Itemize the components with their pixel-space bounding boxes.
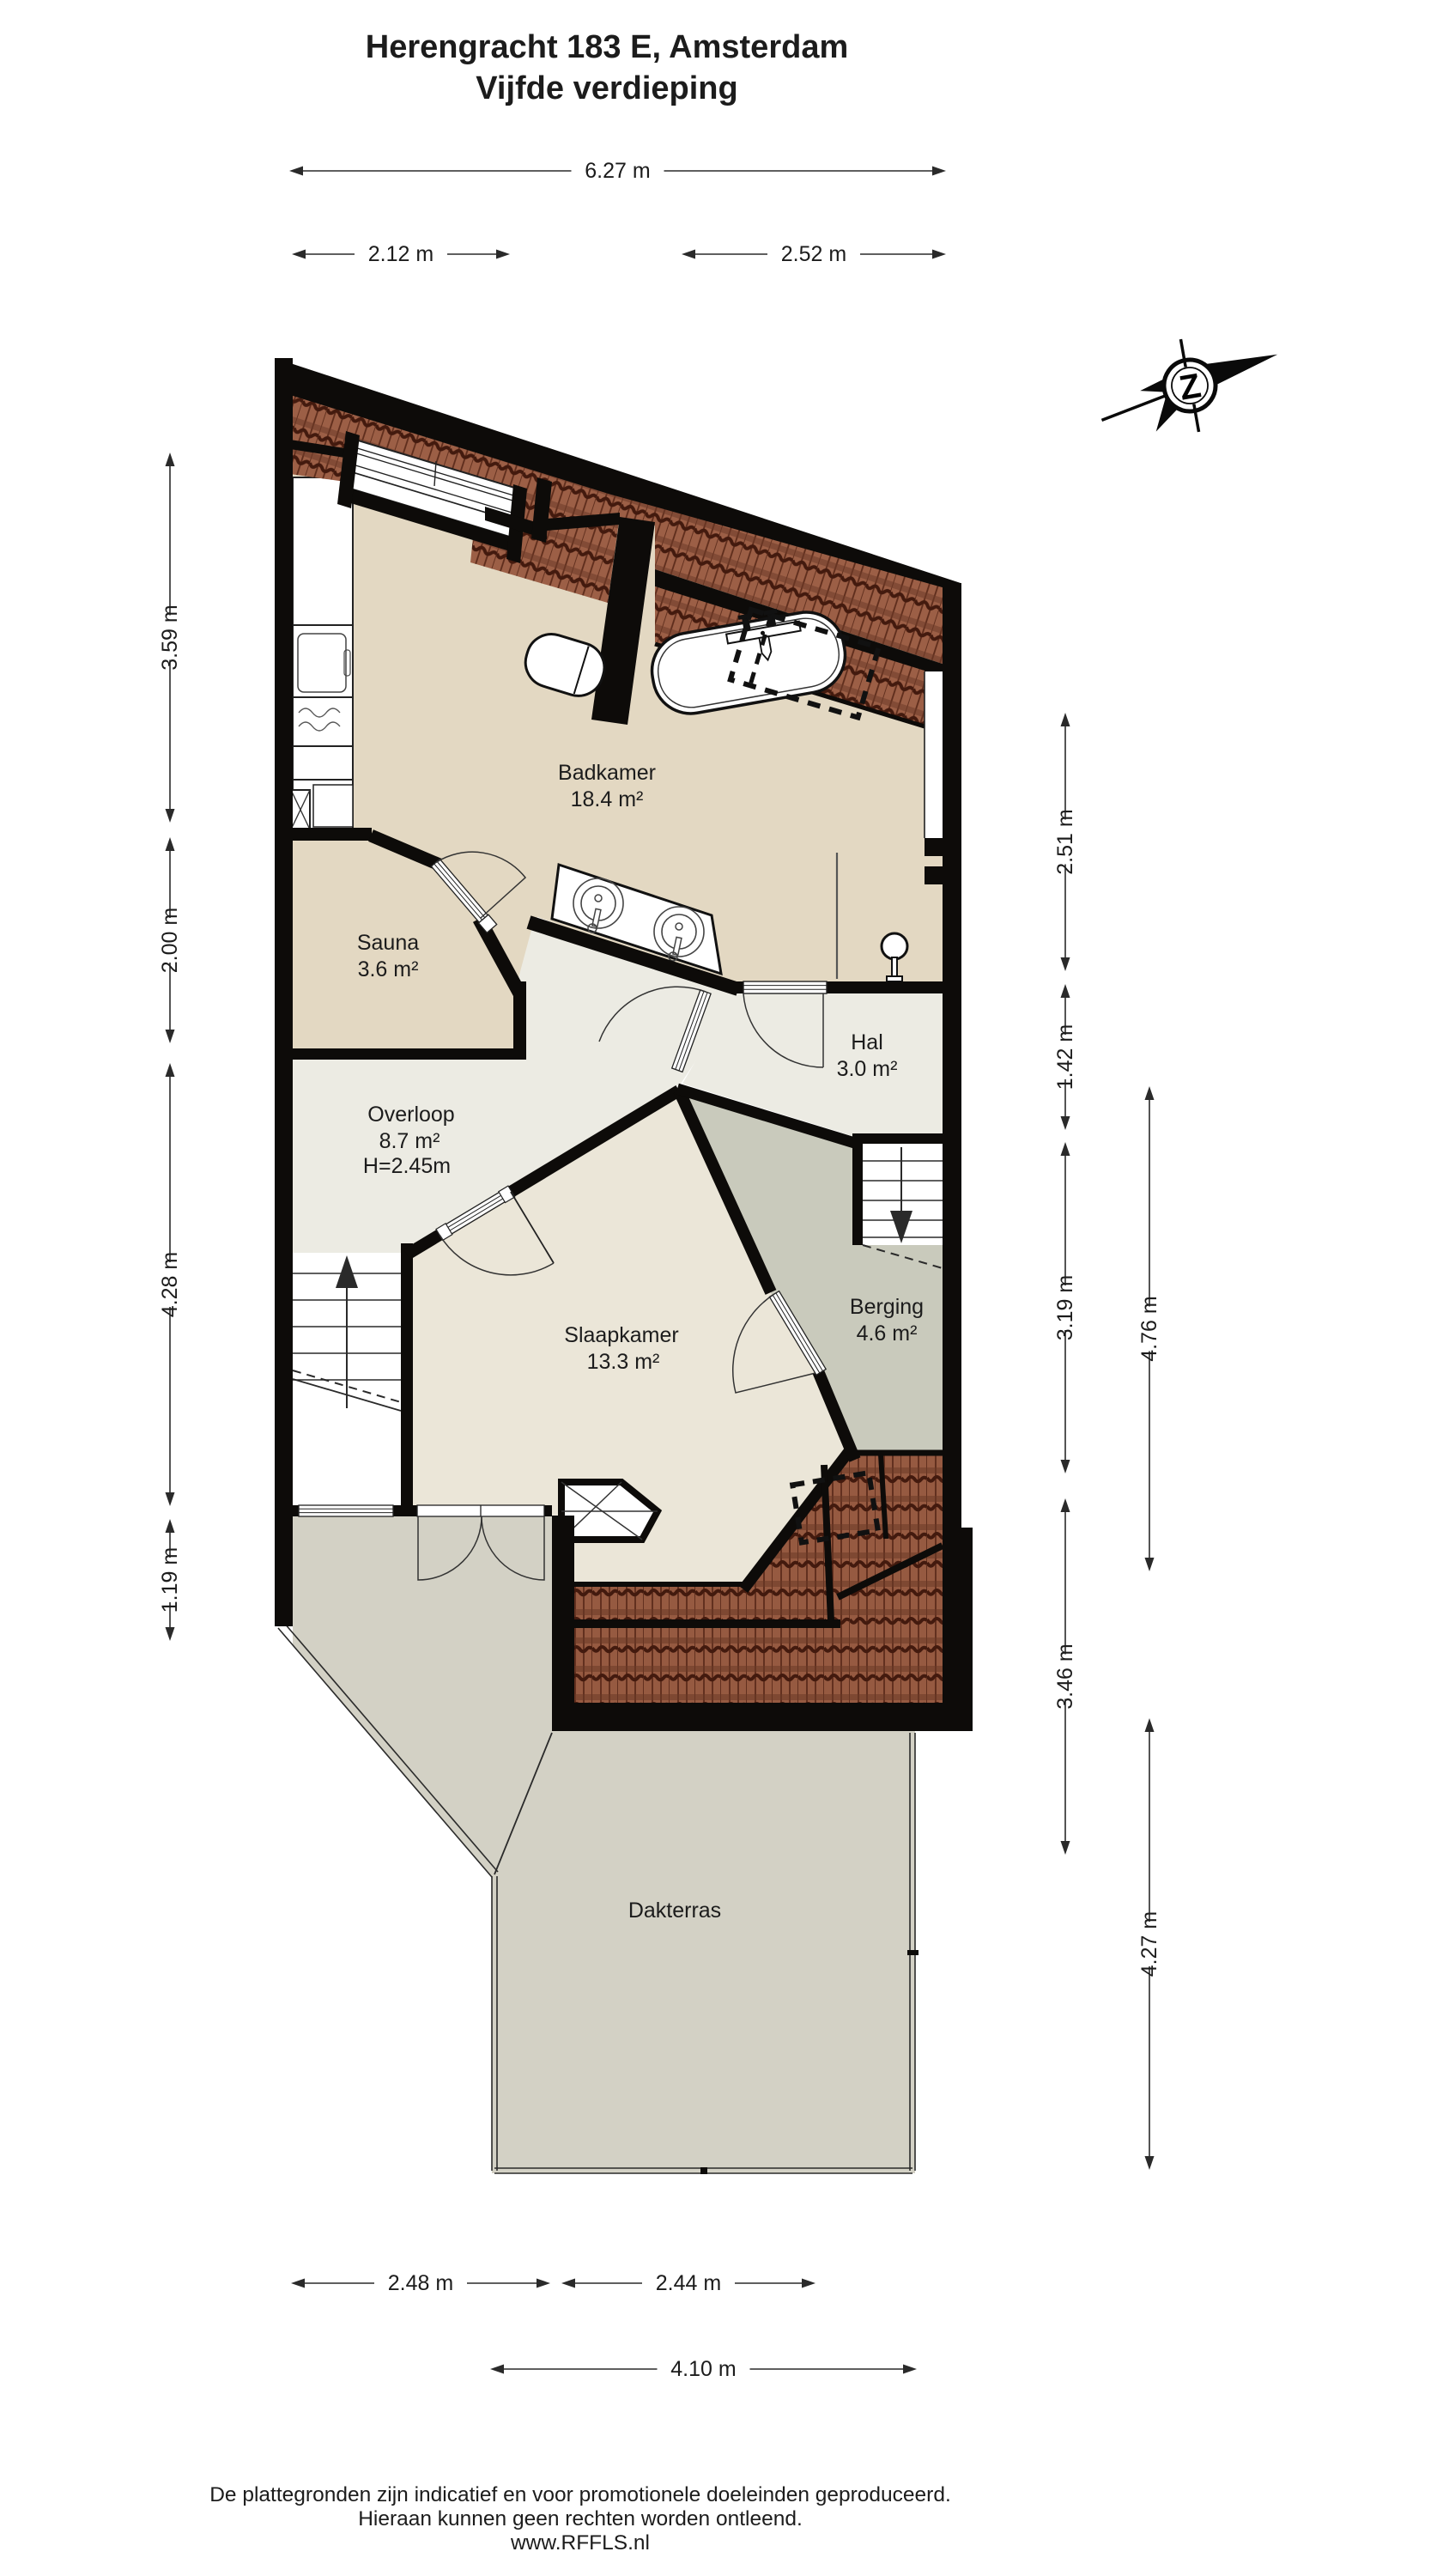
svg-text:2.48 m: 2.48 m: [388, 2271, 453, 2295]
svg-text:3.6 m²: 3.6 m²: [358, 957, 419, 981]
svg-text:4.76 m: 4.76 m: [1137, 1296, 1161, 1361]
svg-text:4.28 m: 4.28 m: [158, 1252, 182, 1317]
svg-text:2.00 m: 2.00 m: [158, 908, 182, 973]
svg-text:Overloop: Overloop: [367, 1103, 454, 1127]
svg-text:6.27 m: 6.27 m: [585, 159, 650, 183]
svg-text:Dakterras: Dakterras: [628, 1899, 721, 1923]
svg-text:Hieraan kunnen geen rechten wo: Hieraan kunnen geen rechten worden ontle…: [358, 2507, 803, 2530]
svg-text:4.6 m²: 4.6 m²: [857, 1321, 918, 1346]
svg-text:3.19 m: 3.19 m: [1053, 1275, 1077, 1340]
svg-text:8.7 m²: 8.7 m²: [379, 1129, 440, 1153]
svg-text:2.44 m: 2.44 m: [656, 2271, 721, 2295]
svg-text:Sauna: Sauna: [357, 931, 419, 955]
svg-text:1.19 m: 1.19 m: [158, 1547, 182, 1613]
svg-text:Herengracht 183 E, Amsterdam: Herengracht 183 E, Amsterdam: [366, 29, 849, 65]
svg-text:Berging: Berging: [850, 1295, 924, 1319]
svg-text:4.27 m: 4.27 m: [1137, 1911, 1161, 1977]
svg-text:3.0 m²: 3.0 m²: [837, 1057, 898, 1081]
svg-text:H=2.45m: H=2.45m: [363, 1154, 451, 1178]
svg-text:3.46 m: 3.46 m: [1053, 1643, 1077, 1709]
svg-text:De plattegronden zijn indicati: De plattegronden zijn indicatief en voor…: [209, 2483, 951, 2506]
svg-text:3.59 m: 3.59 m: [158, 605, 182, 670]
svg-text:Hal: Hal: [851, 1030, 883, 1054]
svg-text:2.51 m: 2.51 m: [1053, 809, 1077, 874]
svg-text:13.3 m²: 13.3 m²: [587, 1350, 660, 1374]
svg-text:Vijfde verdieping: Vijfde verdieping: [476, 70, 737, 106]
svg-text:Slaapkamer: Slaapkamer: [564, 1323, 678, 1347]
svg-text:Badkamer: Badkamer: [558, 761, 656, 785]
svg-text:2.52 m: 2.52 m: [781, 242, 846, 266]
svg-text:www.RFFLS.nl: www.RFFLS.nl: [510, 2531, 650, 2555]
svg-text:4.10 m: 4.10 m: [670, 2357, 736, 2381]
svg-text:18.4 m²: 18.4 m²: [571, 787, 644, 811]
svg-text:1.42 m: 1.42 m: [1053, 1024, 1077, 1090]
svg-text:2.12 m: 2.12 m: [368, 242, 433, 266]
